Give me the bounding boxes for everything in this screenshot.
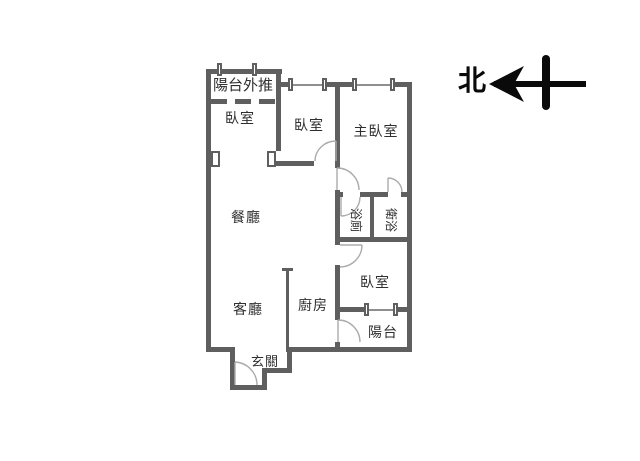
- north-arrow-icon: [489, 59, 586, 106]
- label-balcony-pushout: 陽台外推: [208, 77, 278, 93]
- door-arc-bedroom-right: [340, 245, 362, 267]
- label-master-bathroom: 衛浴: [378, 206, 406, 234]
- label-bedroom-right: 臥室: [349, 275, 401, 291]
- doors-and-compass-layer: [0, 0, 640, 461]
- label-dining-room: 餐廳: [220, 210, 272, 226]
- label-living-room: 客廳: [222, 302, 274, 318]
- label-kitchen: 廚房: [287, 298, 339, 314]
- door-arc-middle-bedroom: [315, 141, 336, 161]
- floor-plan: 陽台外推 臥室 臥室 主臥室 餐廳 客廳 廚房 臥室 陽台 玄關 浴廁 衛浴 北: [0, 0, 640, 461]
- label-entry: 玄關: [240, 355, 290, 371]
- label-bathroom: 浴廁: [343, 206, 371, 234]
- north-label: 北: [458, 66, 486, 96]
- label-master-bedroom: 主臥室: [344, 124, 408, 140]
- label-bedroom-top-left: 臥室: [214, 111, 266, 127]
- door-arc-master-bathroom: [388, 178, 402, 192]
- label-bedroom-top-middle: 臥室: [283, 118, 335, 134]
- label-balcony: 陽台: [357, 325, 409, 341]
- door-arc-master-bedroom: [337, 168, 359, 190]
